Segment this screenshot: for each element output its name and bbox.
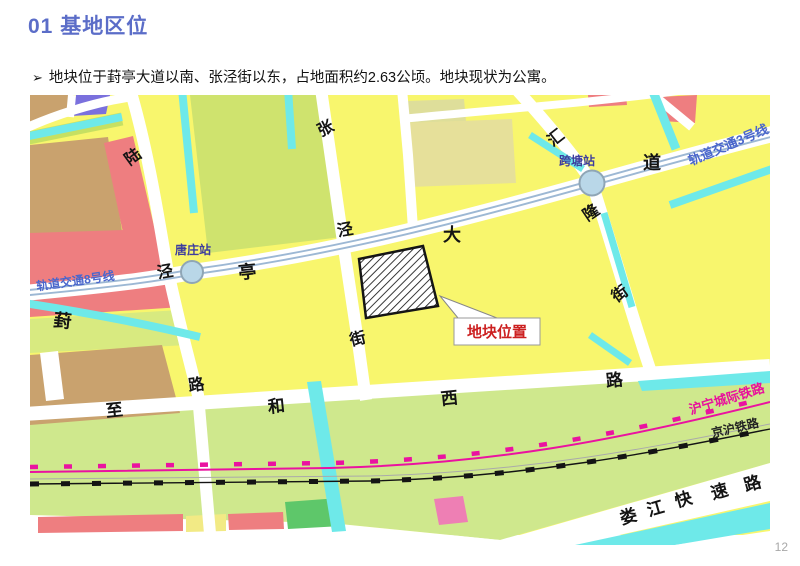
location-map: 地块位置 葑 亭 大 道 陆 泾 路 张 泾 街 汇 隆 街 至 和 西 路 娄…: [30, 95, 770, 545]
road-char: 路: [605, 369, 625, 391]
road-char: 葑: [53, 310, 73, 332]
page-number: 12: [775, 540, 788, 554]
road-char: 大: [443, 224, 461, 245]
road-char: 至: [105, 400, 124, 421]
road-char: 西: [440, 388, 459, 409]
road-char: 和: [267, 396, 286, 417]
station-label-tangzhuang: 唐庄站: [175, 242, 211, 257]
station-circle-kuatang: [580, 171, 605, 196]
plot-label: 地块位置: [467, 323, 527, 341]
bullet-arrow-icon: ➢: [32, 70, 43, 85]
page-title: 01 基地区位: [28, 10, 148, 40]
road-char: 亭: [237, 260, 257, 283]
pink-block: [434, 496, 468, 525]
bullet-line: ➢地块位于葑亭大道以南、张泾街以东，占地面积约2.63公顷。地块现状为公寓。: [32, 66, 772, 87]
beige-block: [406, 119, 516, 187]
station-label-kuatang: 跨塘站: [559, 153, 595, 168]
road-char: 道: [643, 152, 661, 173]
site-plot-hatched: [359, 246, 438, 318]
station-circle-tangzhuang: [181, 261, 203, 283]
bullet-text: 地块位于葑亭大道以南、张泾街以东，占地面积约2.63公顷。地块现状为公寓。: [49, 70, 556, 86]
location-map-svg: 地块位置 葑 亭 大 道 陆 泾 路 张 泾 街 汇 隆 街 至 和 西 路 娄…: [30, 95, 770, 545]
